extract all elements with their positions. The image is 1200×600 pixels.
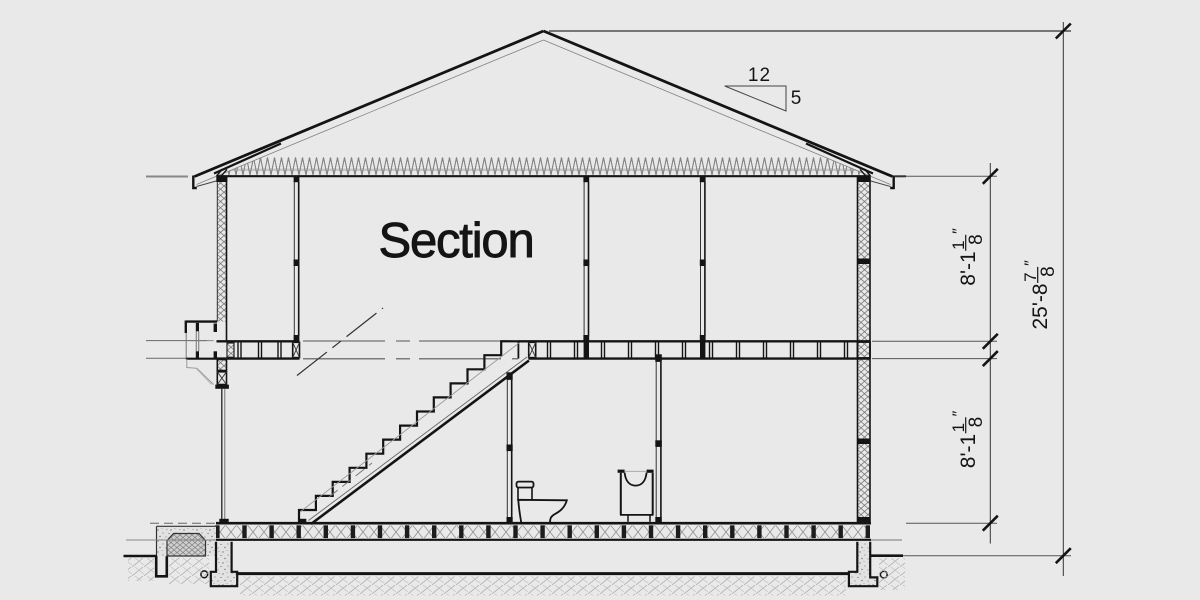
svg-text:″: ″ — [1023, 260, 1040, 266]
svg-text:8'-1: 8'-1 — [957, 251, 980, 285]
svg-text:Section: Section — [378, 214, 533, 268]
svg-text:8: 8 — [1038, 266, 1059, 277]
svg-text:″: ″ — [951, 410, 968, 416]
svg-text:25'-8: 25'-8 — [1029, 283, 1052, 329]
svg-text:8: 8 — [966, 417, 987, 428]
svg-text:8'-1: 8'-1 — [957, 434, 980, 468]
svg-text:12: 12 — [748, 65, 771, 86]
svg-text:5: 5 — [791, 88, 802, 109]
svg-text:″: ″ — [951, 228, 968, 234]
svg-text:8: 8 — [966, 234, 987, 245]
